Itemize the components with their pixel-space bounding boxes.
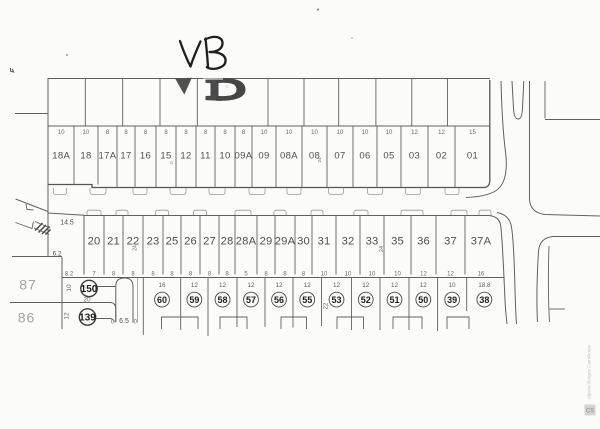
svg-text:60: 60 — [157, 295, 167, 305]
svg-text:18A: 18A — [52, 151, 70, 162]
svg-text:17A: 17A — [98, 151, 116, 162]
svg-text:37: 37 — [444, 235, 457, 247]
svg-text:24: 24 — [379, 246, 385, 252]
svg-text:12: 12 — [304, 282, 312, 289]
svg-text:12: 12 — [362, 282, 370, 289]
svg-text:58: 58 — [217, 295, 227, 305]
svg-text:12: 12 — [420, 272, 427, 278]
svg-text:150: 150 — [81, 284, 98, 295]
svg-text:30: 30 — [297, 235, 310, 247]
svg-text:50: 50 — [418, 295, 428, 305]
svg-text:10: 10 — [337, 130, 344, 136]
svg-text:24: 24 — [317, 157, 322, 163]
svg-text:12: 12 — [420, 282, 428, 289]
svg-text:56: 56 — [274, 295, 284, 305]
svg-text:53: 53 — [331, 295, 341, 305]
svg-text:39: 39 — [447, 295, 457, 305]
svg-text:29A: 29A — [275, 235, 296, 247]
svg-text:36: 36 — [417, 235, 430, 247]
svg-text:10: 10 — [369, 272, 376, 278]
svg-text:16: 16 — [140, 151, 151, 162]
svg-text:12: 12 — [275, 282, 283, 289]
svg-text:32: 32 — [342, 235, 355, 247]
svg-text:12: 12 — [219, 282, 227, 289]
svg-text:59: 59 — [189, 295, 199, 305]
svg-text:22: 22 — [324, 302, 330, 309]
svg-text:12: 12 — [191, 282, 199, 289]
svg-text:10: 10 — [66, 284, 73, 292]
svg-text:35: 35 — [391, 235, 404, 247]
svg-text:38: 38 — [479, 295, 489, 305]
svg-text:27: 27 — [203, 235, 216, 247]
svg-text:07: 07 — [334, 151, 345, 162]
svg-text:CS: CS — [586, 409, 594, 415]
svg-text:18.8: 18.8 — [478, 282, 491, 289]
svg-text:09: 09 — [258, 151, 269, 162]
svg-text:51: 51 — [389, 295, 399, 305]
svg-text:10: 10 — [261, 130, 268, 136]
svg-text:15: 15 — [160, 151, 171, 162]
svg-text:Dijenis Borges Camilhotes: Dijenis Borges Camilhotes — [587, 344, 592, 399]
svg-text:05: 05 — [383, 151, 394, 162]
svg-text:10: 10 — [386, 130, 393, 136]
svg-text:28: 28 — [221, 235, 234, 247]
svg-text:16: 16 — [158, 282, 166, 289]
svg-text:20: 20 — [88, 235, 101, 247]
svg-text:23: 23 — [147, 235, 160, 247]
svg-text:01: 01 — [467, 151, 478, 162]
svg-text:10: 10 — [321, 272, 328, 278]
svg-text:31: 31 — [318, 235, 331, 247]
svg-text:06: 06 — [359, 151, 370, 162]
svg-text:12: 12 — [438, 130, 445, 136]
svg-text:12: 12 — [180, 151, 191, 162]
svg-text:03: 03 — [409, 151, 420, 162]
svg-text:20: 20 — [83, 297, 91, 304]
svg-text:08A: 08A — [280, 151, 298, 162]
svg-text:28A: 28A — [236, 235, 257, 247]
svg-text:21: 21 — [107, 235, 120, 247]
svg-text:11: 11 — [200, 151, 211, 162]
svg-text:33: 33 — [366, 235, 379, 247]
svg-text:10: 10 — [362, 130, 369, 136]
svg-text:17: 17 — [120, 151, 131, 162]
svg-text:10: 10 — [83, 130, 90, 136]
svg-text:09A: 09A — [234, 151, 252, 162]
svg-text:26: 26 — [184, 235, 197, 247]
svg-text:12: 12 — [411, 130, 418, 136]
svg-text:10: 10 — [311, 130, 318, 136]
svg-text:15: 15 — [469, 130, 476, 136]
svg-text:12: 12 — [64, 312, 71, 320]
svg-text:12: 12 — [333, 282, 341, 289]
svg-text:24: 24 — [133, 245, 139, 251]
svg-text:8.2: 8.2 — [65, 271, 74, 277]
svg-text:12: 12 — [391, 282, 399, 289]
svg-text:87: 87 — [19, 277, 37, 293]
svg-text:29: 29 — [260, 235, 273, 247]
svg-text:139: 139 — [79, 313, 96, 324]
svg-text:10: 10 — [219, 151, 230, 162]
svg-text:02: 02 — [436, 151, 447, 162]
svg-text:16: 16 — [478, 272, 485, 278]
svg-text:14.5: 14.5 — [60, 220, 74, 227]
svg-text:6.5: 6.5 — [119, 318, 129, 325]
svg-text:10: 10 — [58, 130, 65, 136]
svg-text:12: 12 — [247, 282, 255, 289]
svg-text:25: 25 — [166, 235, 179, 247]
svg-text:10: 10 — [345, 272, 352, 278]
svg-text:12: 12 — [447, 272, 454, 278]
svg-text:10: 10 — [286, 130, 293, 136]
svg-text:10: 10 — [394, 272, 401, 278]
svg-text:86: 86 — [18, 310, 36, 326]
svg-text:10: 10 — [449, 282, 457, 289]
svg-text:37A: 37A — [471, 235, 492, 247]
svg-text:55: 55 — [302, 295, 312, 305]
svg-text:57: 57 — [246, 295, 256, 305]
svg-text:18: 18 — [80, 151, 91, 162]
svg-text:52: 52 — [361, 295, 371, 305]
